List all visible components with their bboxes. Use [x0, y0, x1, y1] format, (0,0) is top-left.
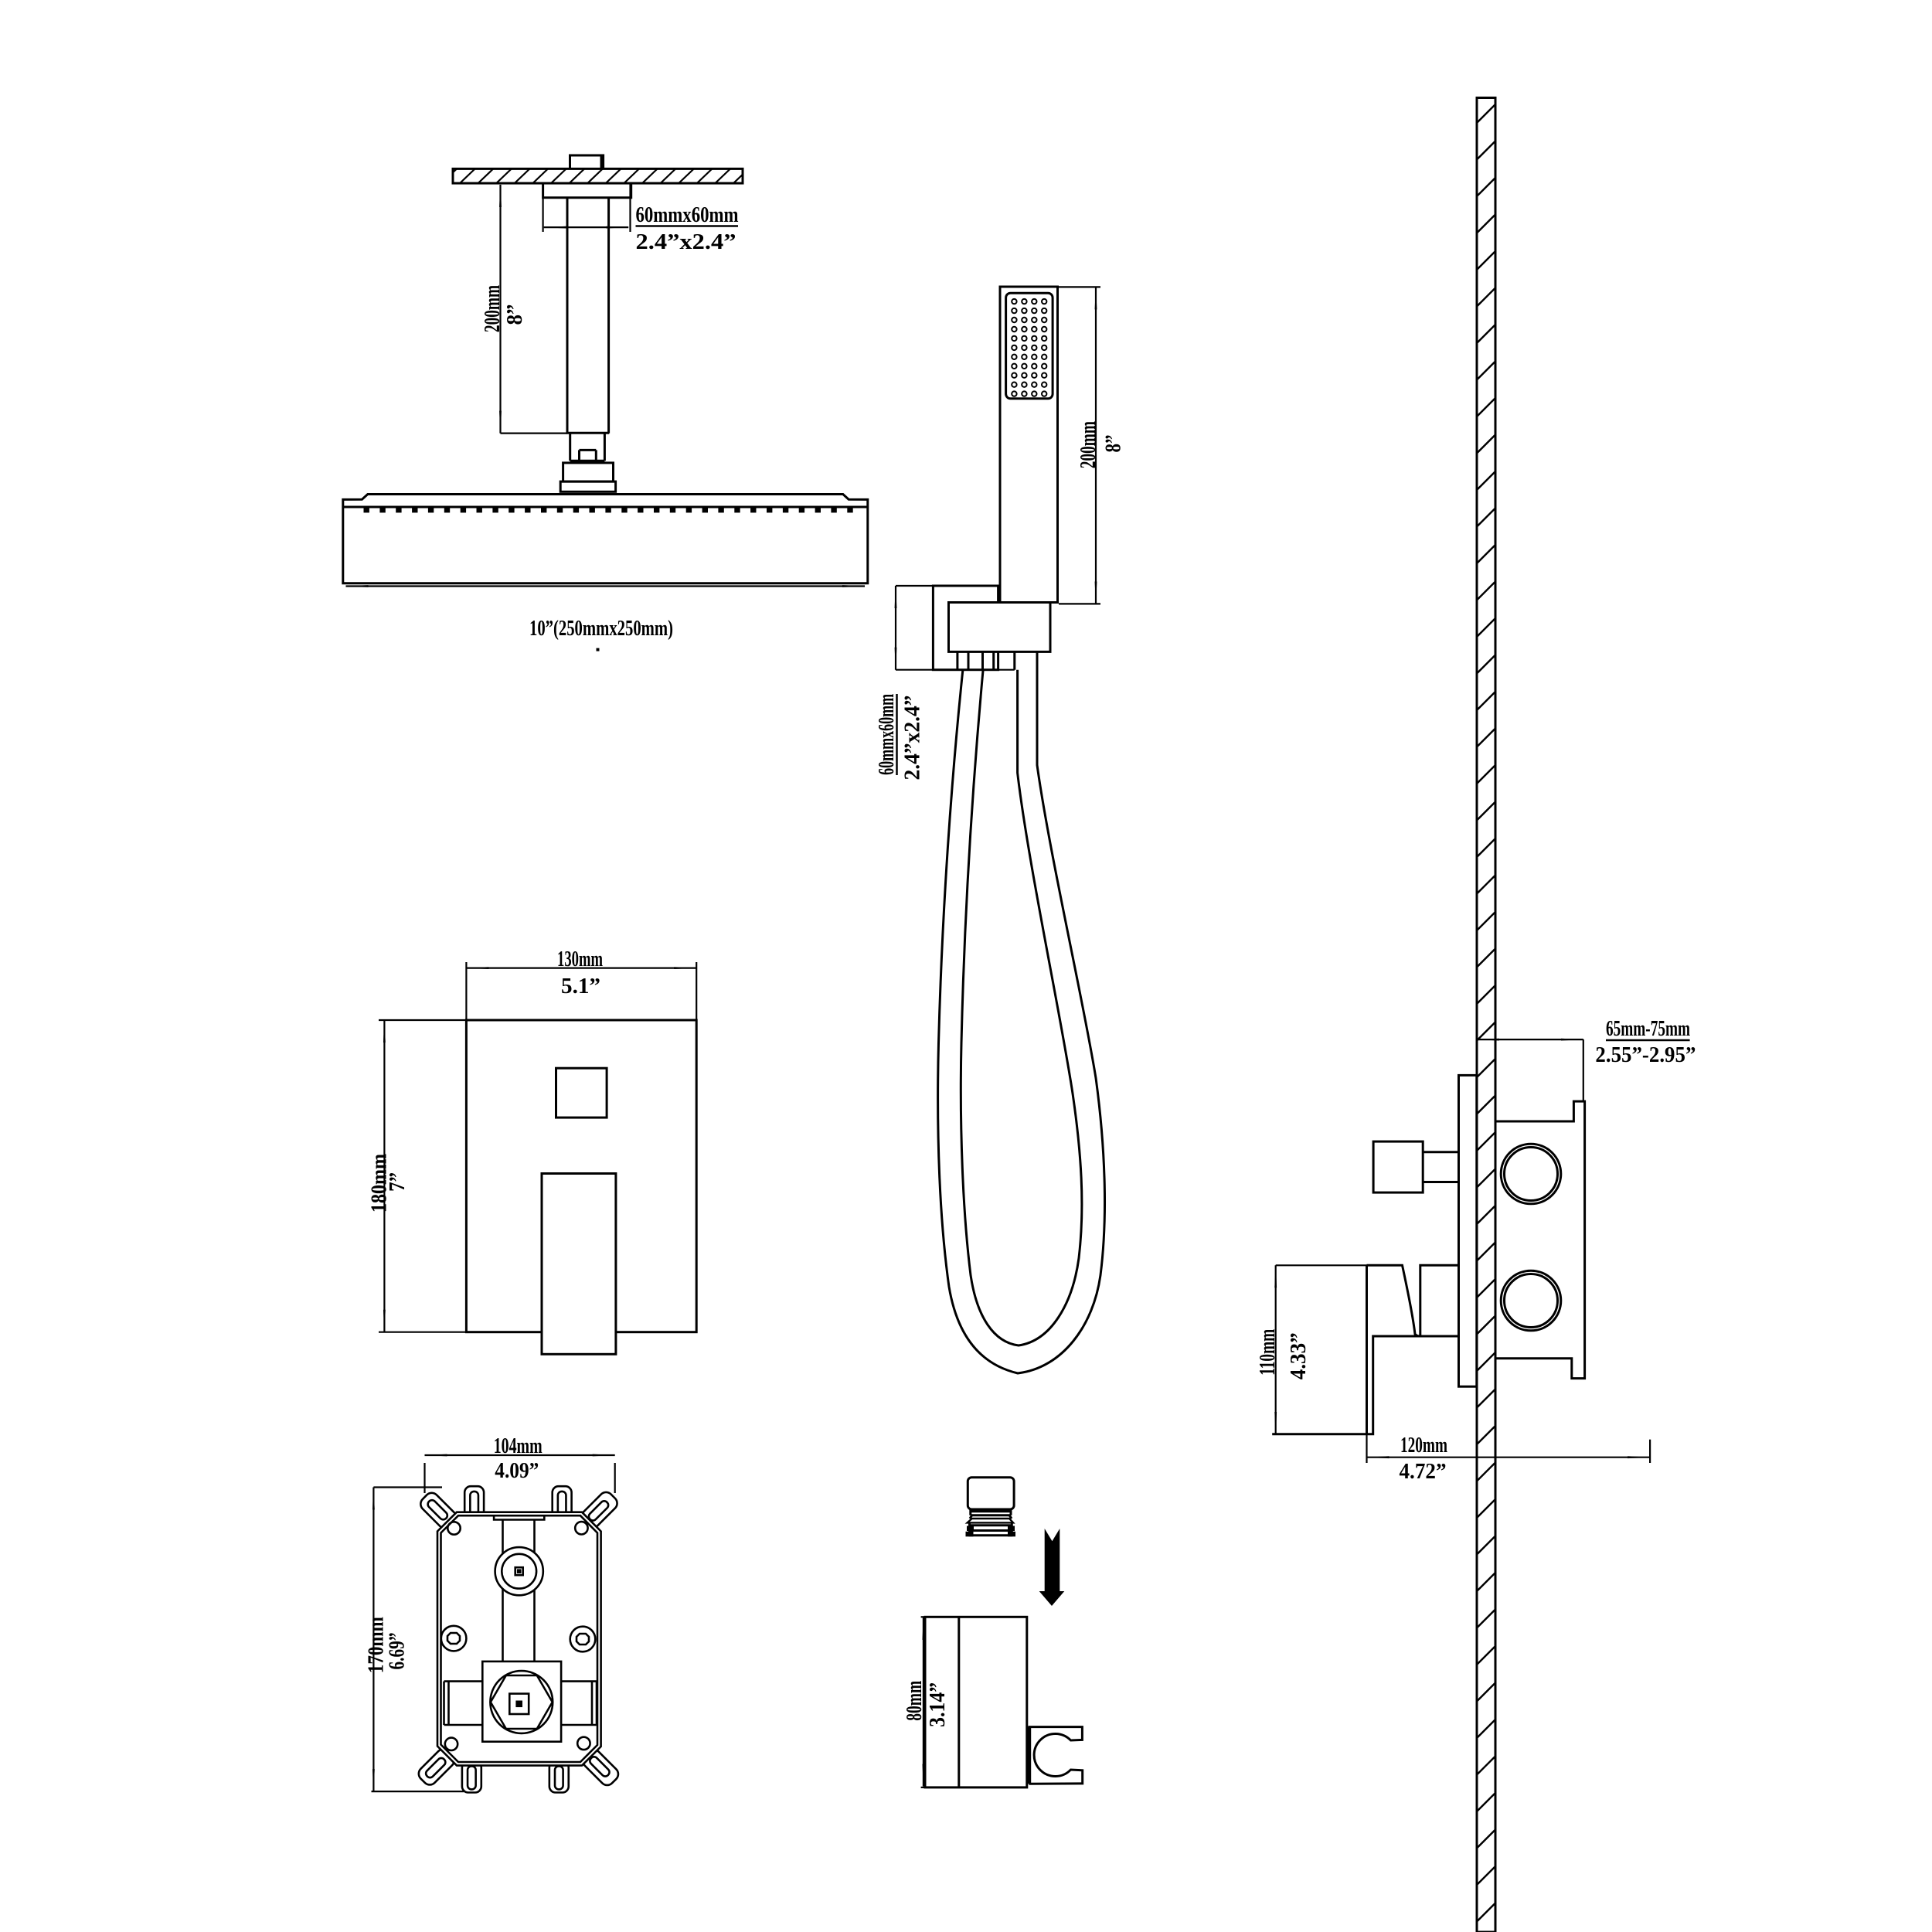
svg-text:4.09”: 4.09” — [495, 1459, 539, 1483]
svg-text:6.69”: 6.69” — [386, 1633, 410, 1670]
svg-text:80mm: 80mm — [903, 1681, 927, 1721]
svg-text:130mm: 130mm — [557, 947, 603, 971]
svg-text:8”: 8” — [503, 304, 527, 325]
svg-text:8”: 8” — [1102, 435, 1126, 453]
svg-text:4.33”: 4.33” — [1287, 1332, 1311, 1379]
svg-text:3.14”: 3.14” — [926, 1682, 950, 1727]
svg-text:200mm: 200mm — [481, 285, 505, 332]
svg-text:120mm: 120mm — [1400, 1434, 1447, 1458]
svg-text:7”: 7” — [386, 1172, 410, 1192]
svg-text:110mm: 110mm — [1256, 1329, 1280, 1376]
svg-text:10”(250mmx250mm): 10”(250mmx250mm) — [529, 617, 673, 641]
svg-text:5.1”: 5.1” — [561, 975, 600, 998]
svg-text:200mm: 200mm — [1077, 421, 1100, 468]
svg-text:4.72”: 4.72” — [1400, 1460, 1447, 1484]
svg-text:2.4”x2.4”: 2.4”x2.4” — [901, 696, 925, 781]
svg-text:2.55”-2.95”: 2.55”-2.95” — [1595, 1043, 1696, 1067]
svg-text:2.4”x2.4”: 2.4”x2.4” — [636, 230, 736, 254]
svg-text:60mmx60mm: 60mmx60mm — [636, 203, 739, 227]
svg-text:60mmx60mm: 60mmx60mm — [875, 694, 899, 775]
svg-text:104mm: 104mm — [494, 1434, 543, 1458]
svg-text:65mm-75mm: 65mm-75mm — [1606, 1017, 1690, 1041]
